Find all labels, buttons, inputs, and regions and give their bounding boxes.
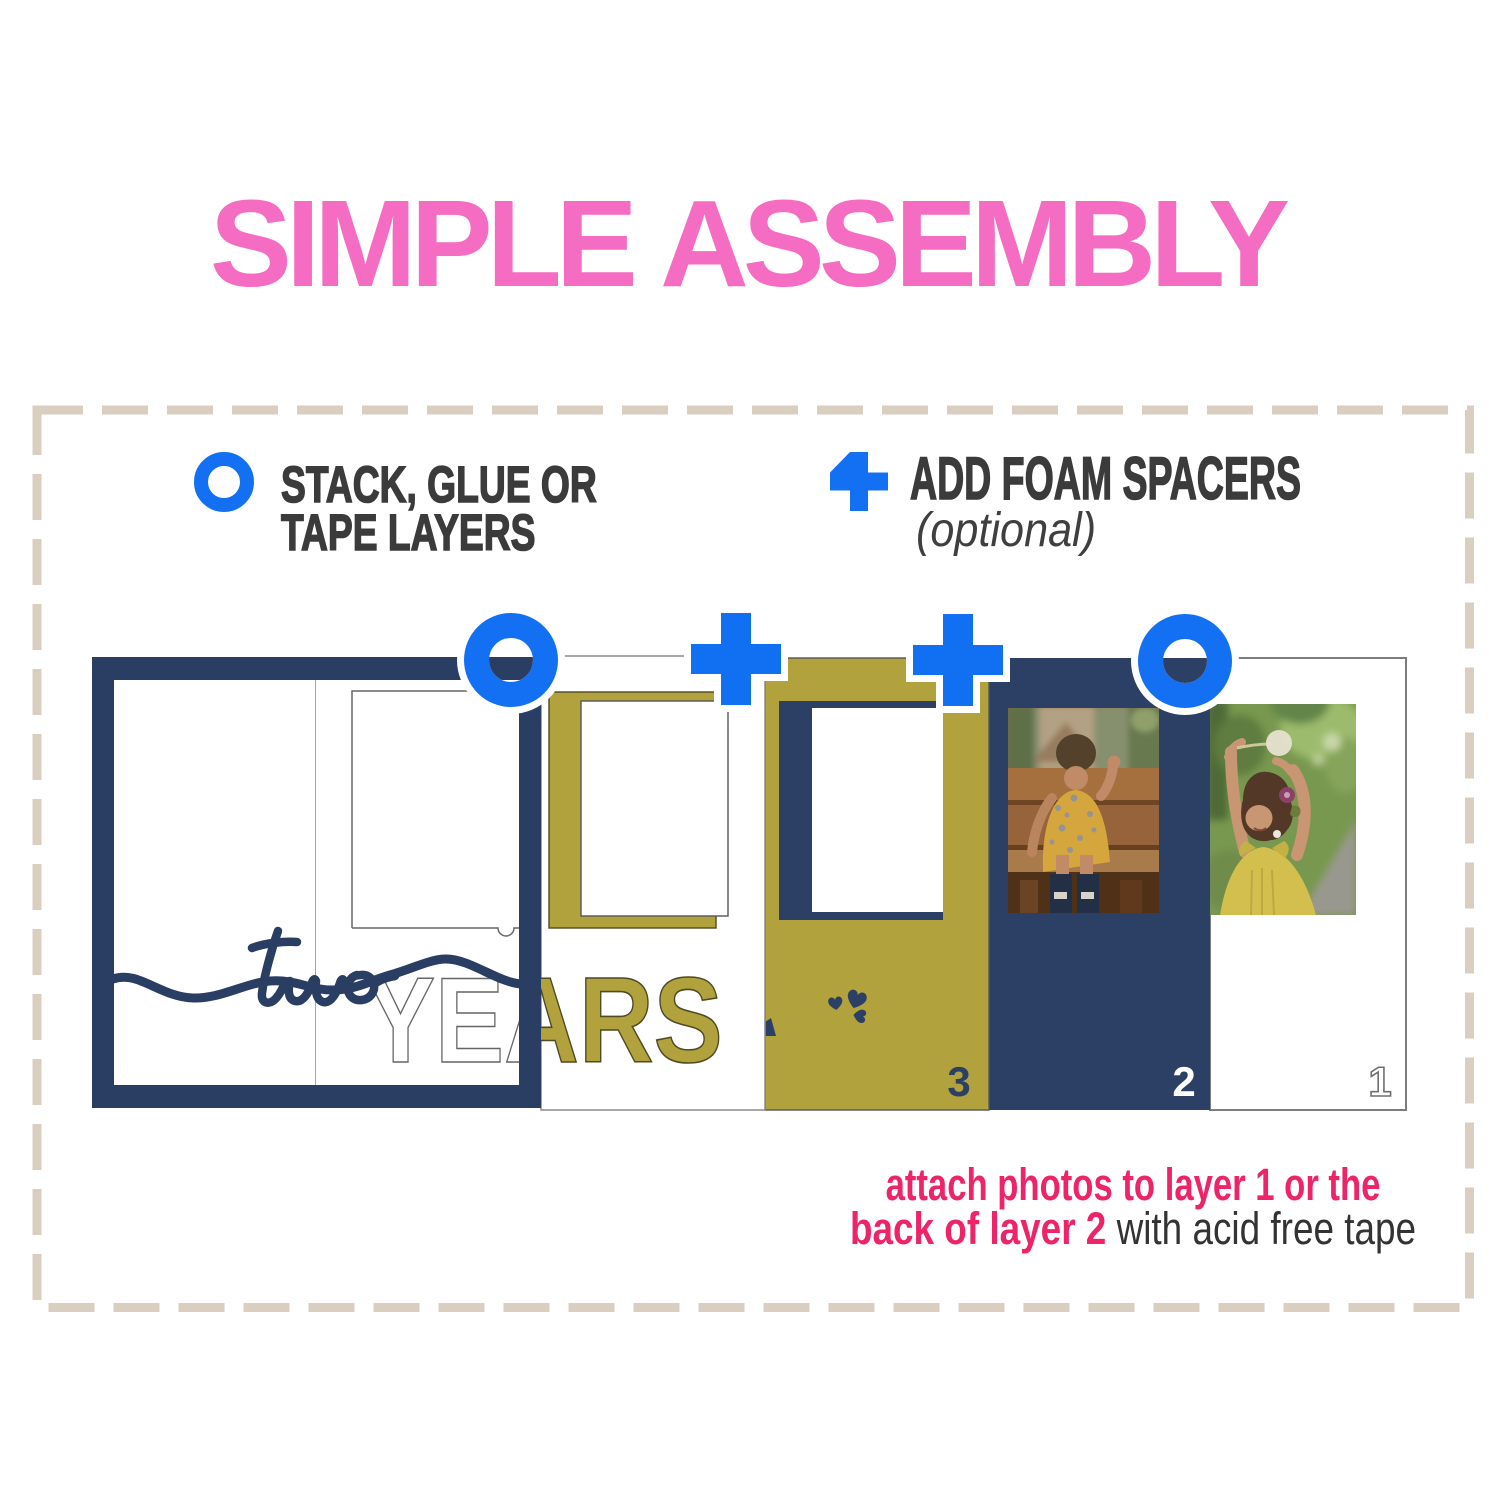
svg-text:2: 2 bbox=[1172, 1058, 1195, 1105]
svg-text:3: 3 bbox=[947, 1058, 970, 1105]
svg-text:1: 1 bbox=[1368, 1058, 1391, 1105]
